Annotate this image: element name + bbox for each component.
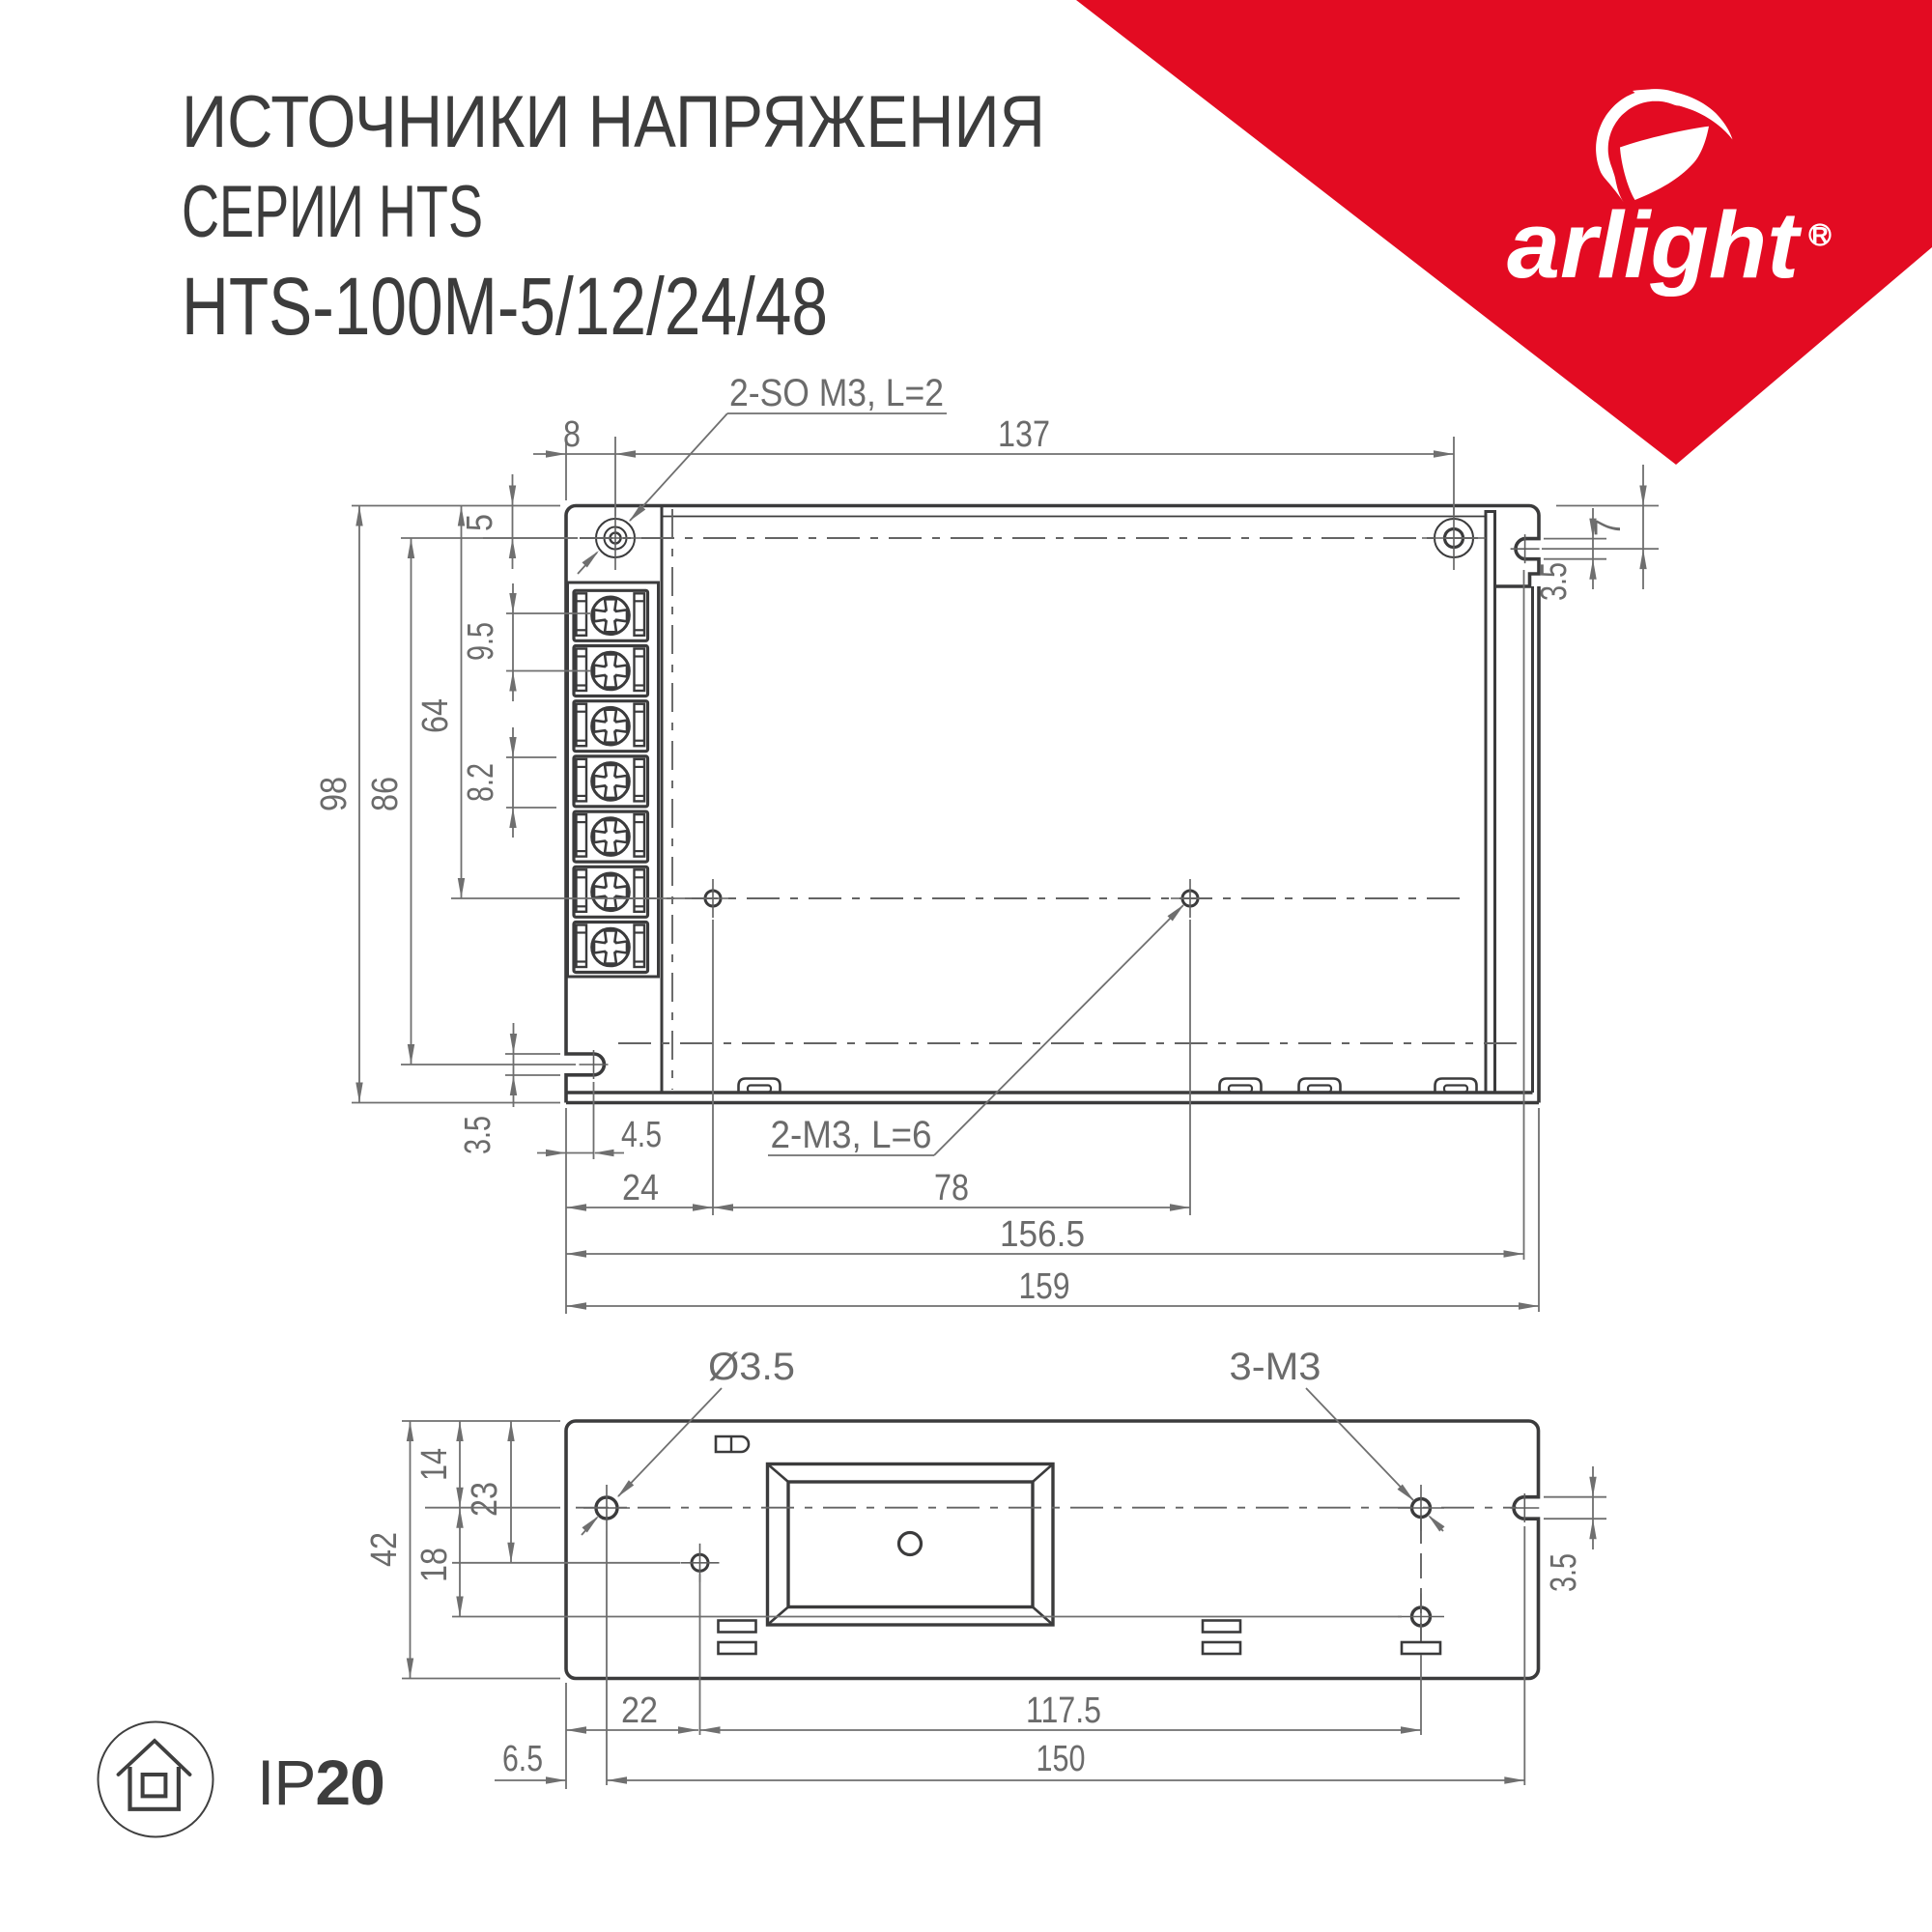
svg-text:14: 14 (414, 1448, 455, 1481)
svg-text:6.5: 6.5 (502, 1739, 543, 1779)
svg-text:86: 86 (365, 777, 406, 811)
svg-text:ИСТОЧНИКИ НАПРЯЖЕНИЯ: ИСТОЧНИКИ НАПРЯЖЕНИЯ (182, 81, 1045, 163)
svg-text:8: 8 (563, 414, 581, 455)
svg-text:3.5: 3.5 (458, 1116, 498, 1154)
svg-text:R: R (1811, 223, 1828, 249)
svg-text:3-M3: 3-M3 (1230, 1346, 1321, 1388)
svg-text:СЕРИИ HTS: СЕРИИ HTS (182, 171, 483, 253)
svg-text:9.5: 9.5 (461, 622, 501, 661)
svg-text:arlight: arlight (1507, 192, 1803, 298)
svg-text:159: 159 (1019, 1266, 1070, 1307)
svg-text:2-M3, L=6: 2-M3, L=6 (771, 1114, 932, 1156)
svg-text:4.5: 4.5 (621, 1115, 662, 1155)
svg-text:Ø3.5: Ø3.5 (708, 1346, 795, 1388)
svg-text:18: 18 (414, 1548, 455, 1582)
svg-text:2-SO M3, L=2: 2-SO M3, L=2 (729, 372, 944, 414)
svg-text:22: 22 (621, 1690, 658, 1731)
svg-text:156.5: 156.5 (1000, 1214, 1085, 1255)
svg-text:98: 98 (314, 777, 355, 811)
svg-text:117.5: 117.5 (1026, 1690, 1101, 1731)
svg-text:24: 24 (622, 1168, 659, 1208)
svg-text:150: 150 (1037, 1739, 1086, 1779)
svg-text:IP20: IP20 (257, 1747, 384, 1818)
svg-text:HTS-100M-5/12/24/48: HTS-100M-5/12/24/48 (182, 261, 828, 352)
svg-text:78: 78 (934, 1168, 969, 1208)
svg-text:3.5: 3.5 (1534, 562, 1575, 601)
svg-text:3.5: 3.5 (1544, 1553, 1584, 1592)
svg-text:64: 64 (415, 698, 456, 733)
svg-text:42: 42 (364, 1532, 405, 1567)
svg-text:8.2: 8.2 (461, 763, 501, 802)
svg-text:23: 23 (465, 1482, 505, 1517)
svg-text:137: 137 (998, 414, 1050, 455)
svg-text:5: 5 (460, 514, 500, 531)
